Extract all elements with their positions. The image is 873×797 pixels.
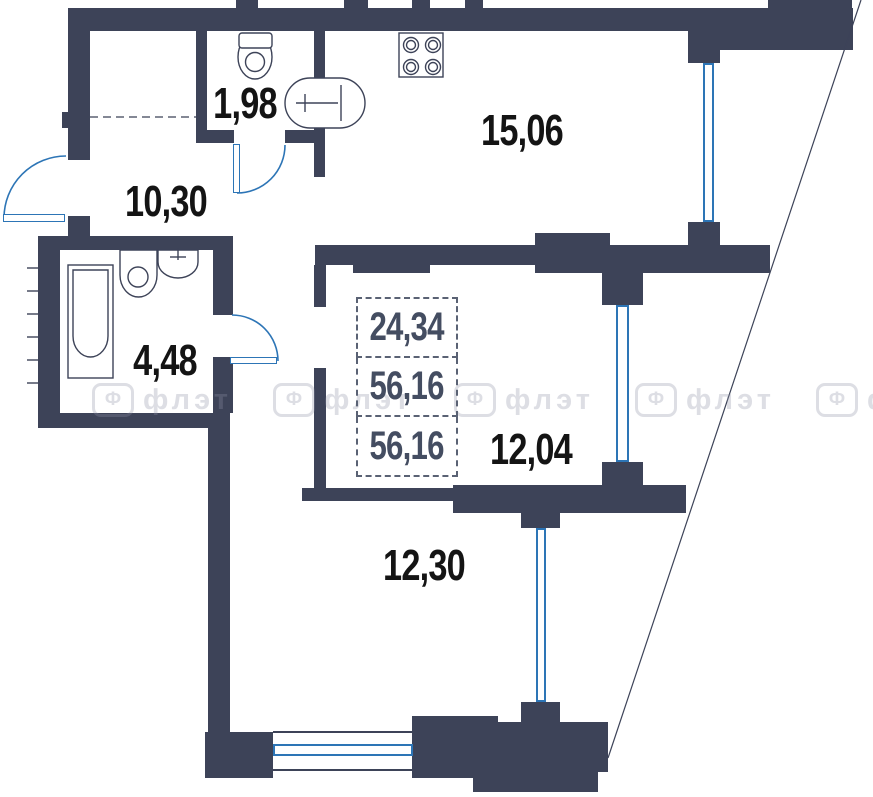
living-room-window bbox=[273, 744, 413, 756]
watermark: Ф флэт bbox=[635, 383, 775, 417]
watermark-logo-icon: Ф bbox=[816, 383, 858, 417]
wc-door-leaf bbox=[233, 144, 240, 193]
watermark-logo-icon: Ф bbox=[635, 383, 677, 417]
room-label-bathroom: 4,48 bbox=[133, 336, 197, 386]
bathtub bbox=[68, 265, 113, 378]
watermark: Ф флэт bbox=[454, 383, 594, 417]
bedroom-bottom-window bbox=[536, 528, 546, 702]
watermark-logo-icon: Ф bbox=[92, 383, 134, 417]
room-label-kitchen: 15,06 bbox=[481, 106, 563, 156]
bathroom-door-arc bbox=[232, 315, 278, 361]
room-label-wc: 1,98 bbox=[213, 79, 277, 129]
watermark-logo-icon: Ф bbox=[273, 383, 315, 417]
stat-total-area: 56,16 bbox=[356, 358, 458, 417]
bathroom-sink bbox=[120, 250, 157, 297]
stat-total-area-2: 56,16 bbox=[356, 417, 458, 477]
stat-living-area: 24,34 bbox=[356, 297, 458, 358]
wc-door-arc bbox=[237, 145, 285, 193]
area-stats-box: 24,34 56,16 56,16 bbox=[356, 297, 458, 477]
kitchen-sink bbox=[285, 78, 365, 128]
floor-plan-canvas: Ф флэт Ф флэт Ф флэт Ф флэт Ф флэт 1,98 … bbox=[0, 0, 873, 797]
bathroom-door-leaf bbox=[230, 357, 277, 364]
room-label-living-room: 12,30 bbox=[383, 541, 465, 591]
stove bbox=[399, 33, 443, 77]
site-boundary-line bbox=[608, 0, 861, 758]
entrance-door-leaf bbox=[3, 214, 65, 222]
hatch-ticks bbox=[27, 268, 38, 383]
room-label-hallway: 10,30 bbox=[125, 177, 207, 227]
room-label-bedroom: 12,04 bbox=[490, 425, 572, 475]
kitchen-window bbox=[703, 63, 714, 222]
watermark-logo-icon: Ф bbox=[454, 383, 496, 417]
entrance-door-arc bbox=[4, 156, 66, 218]
bathroom-basin bbox=[158, 248, 198, 278]
toilet bbox=[238, 33, 272, 79]
watermark: Ф флэт bbox=[92, 383, 232, 417]
watermark: Ф флэт bbox=[816, 383, 873, 417]
